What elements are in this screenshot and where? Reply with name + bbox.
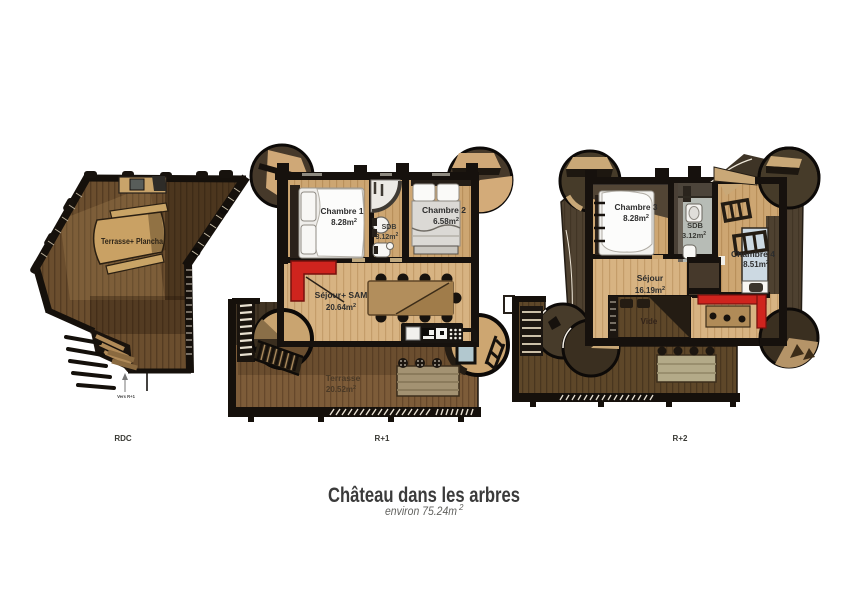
svg-text:Séjour: Séjour bbox=[637, 273, 664, 283]
svg-text:Chambre 1: Chambre 1 bbox=[321, 206, 364, 216]
svg-text:Château dans les arbres: Château dans les arbres bbox=[328, 484, 520, 507]
svg-text:Vide: Vide bbox=[641, 317, 658, 326]
svg-text:8.28m2: 8.28m2 bbox=[623, 214, 649, 223]
svg-text:3.12m2: 3.12m2 bbox=[376, 232, 399, 241]
svg-text:3.12m2: 3.12m2 bbox=[682, 231, 706, 240]
svg-text:20.64m2: 20.64m2 bbox=[326, 303, 356, 312]
svg-text:20.52m2: 20.52m2 bbox=[326, 385, 356, 394]
svg-text:Vers R+1: Vers R+1 bbox=[117, 394, 135, 399]
svg-text:Chambre 2: Chambre 2 bbox=[422, 205, 466, 215]
svg-text:SDB: SDB bbox=[687, 221, 703, 230]
svg-text:Chambre 4: Chambre 4 bbox=[731, 249, 775, 259]
svg-text:6.58m2: 6.58m2 bbox=[433, 217, 459, 226]
svg-text:Terrasse: Terrasse bbox=[326, 373, 361, 383]
svg-text:Chambre 3: Chambre 3 bbox=[615, 202, 658, 212]
svg-text:SDB: SDB bbox=[382, 224, 397, 231]
svg-text:16.19m2: 16.19m2 bbox=[635, 286, 665, 295]
svg-text:R+1: R+1 bbox=[375, 434, 390, 443]
svg-text:R+2: R+2 bbox=[673, 434, 688, 443]
svg-text:2: 2 bbox=[458, 503, 464, 512]
svg-text:RDC: RDC bbox=[114, 434, 132, 443]
svg-text:8.28m2: 8.28m2 bbox=[331, 218, 357, 227]
svg-text:8.51m2: 8.51m2 bbox=[743, 260, 769, 269]
svg-text:Terrasse+ Plancha: Terrasse+ Plancha bbox=[101, 237, 163, 246]
svg-text:environ 75.24m: environ 75.24m bbox=[385, 506, 457, 518]
svg-text:Séjour+ SAM: Séjour+ SAM bbox=[315, 290, 368, 300]
